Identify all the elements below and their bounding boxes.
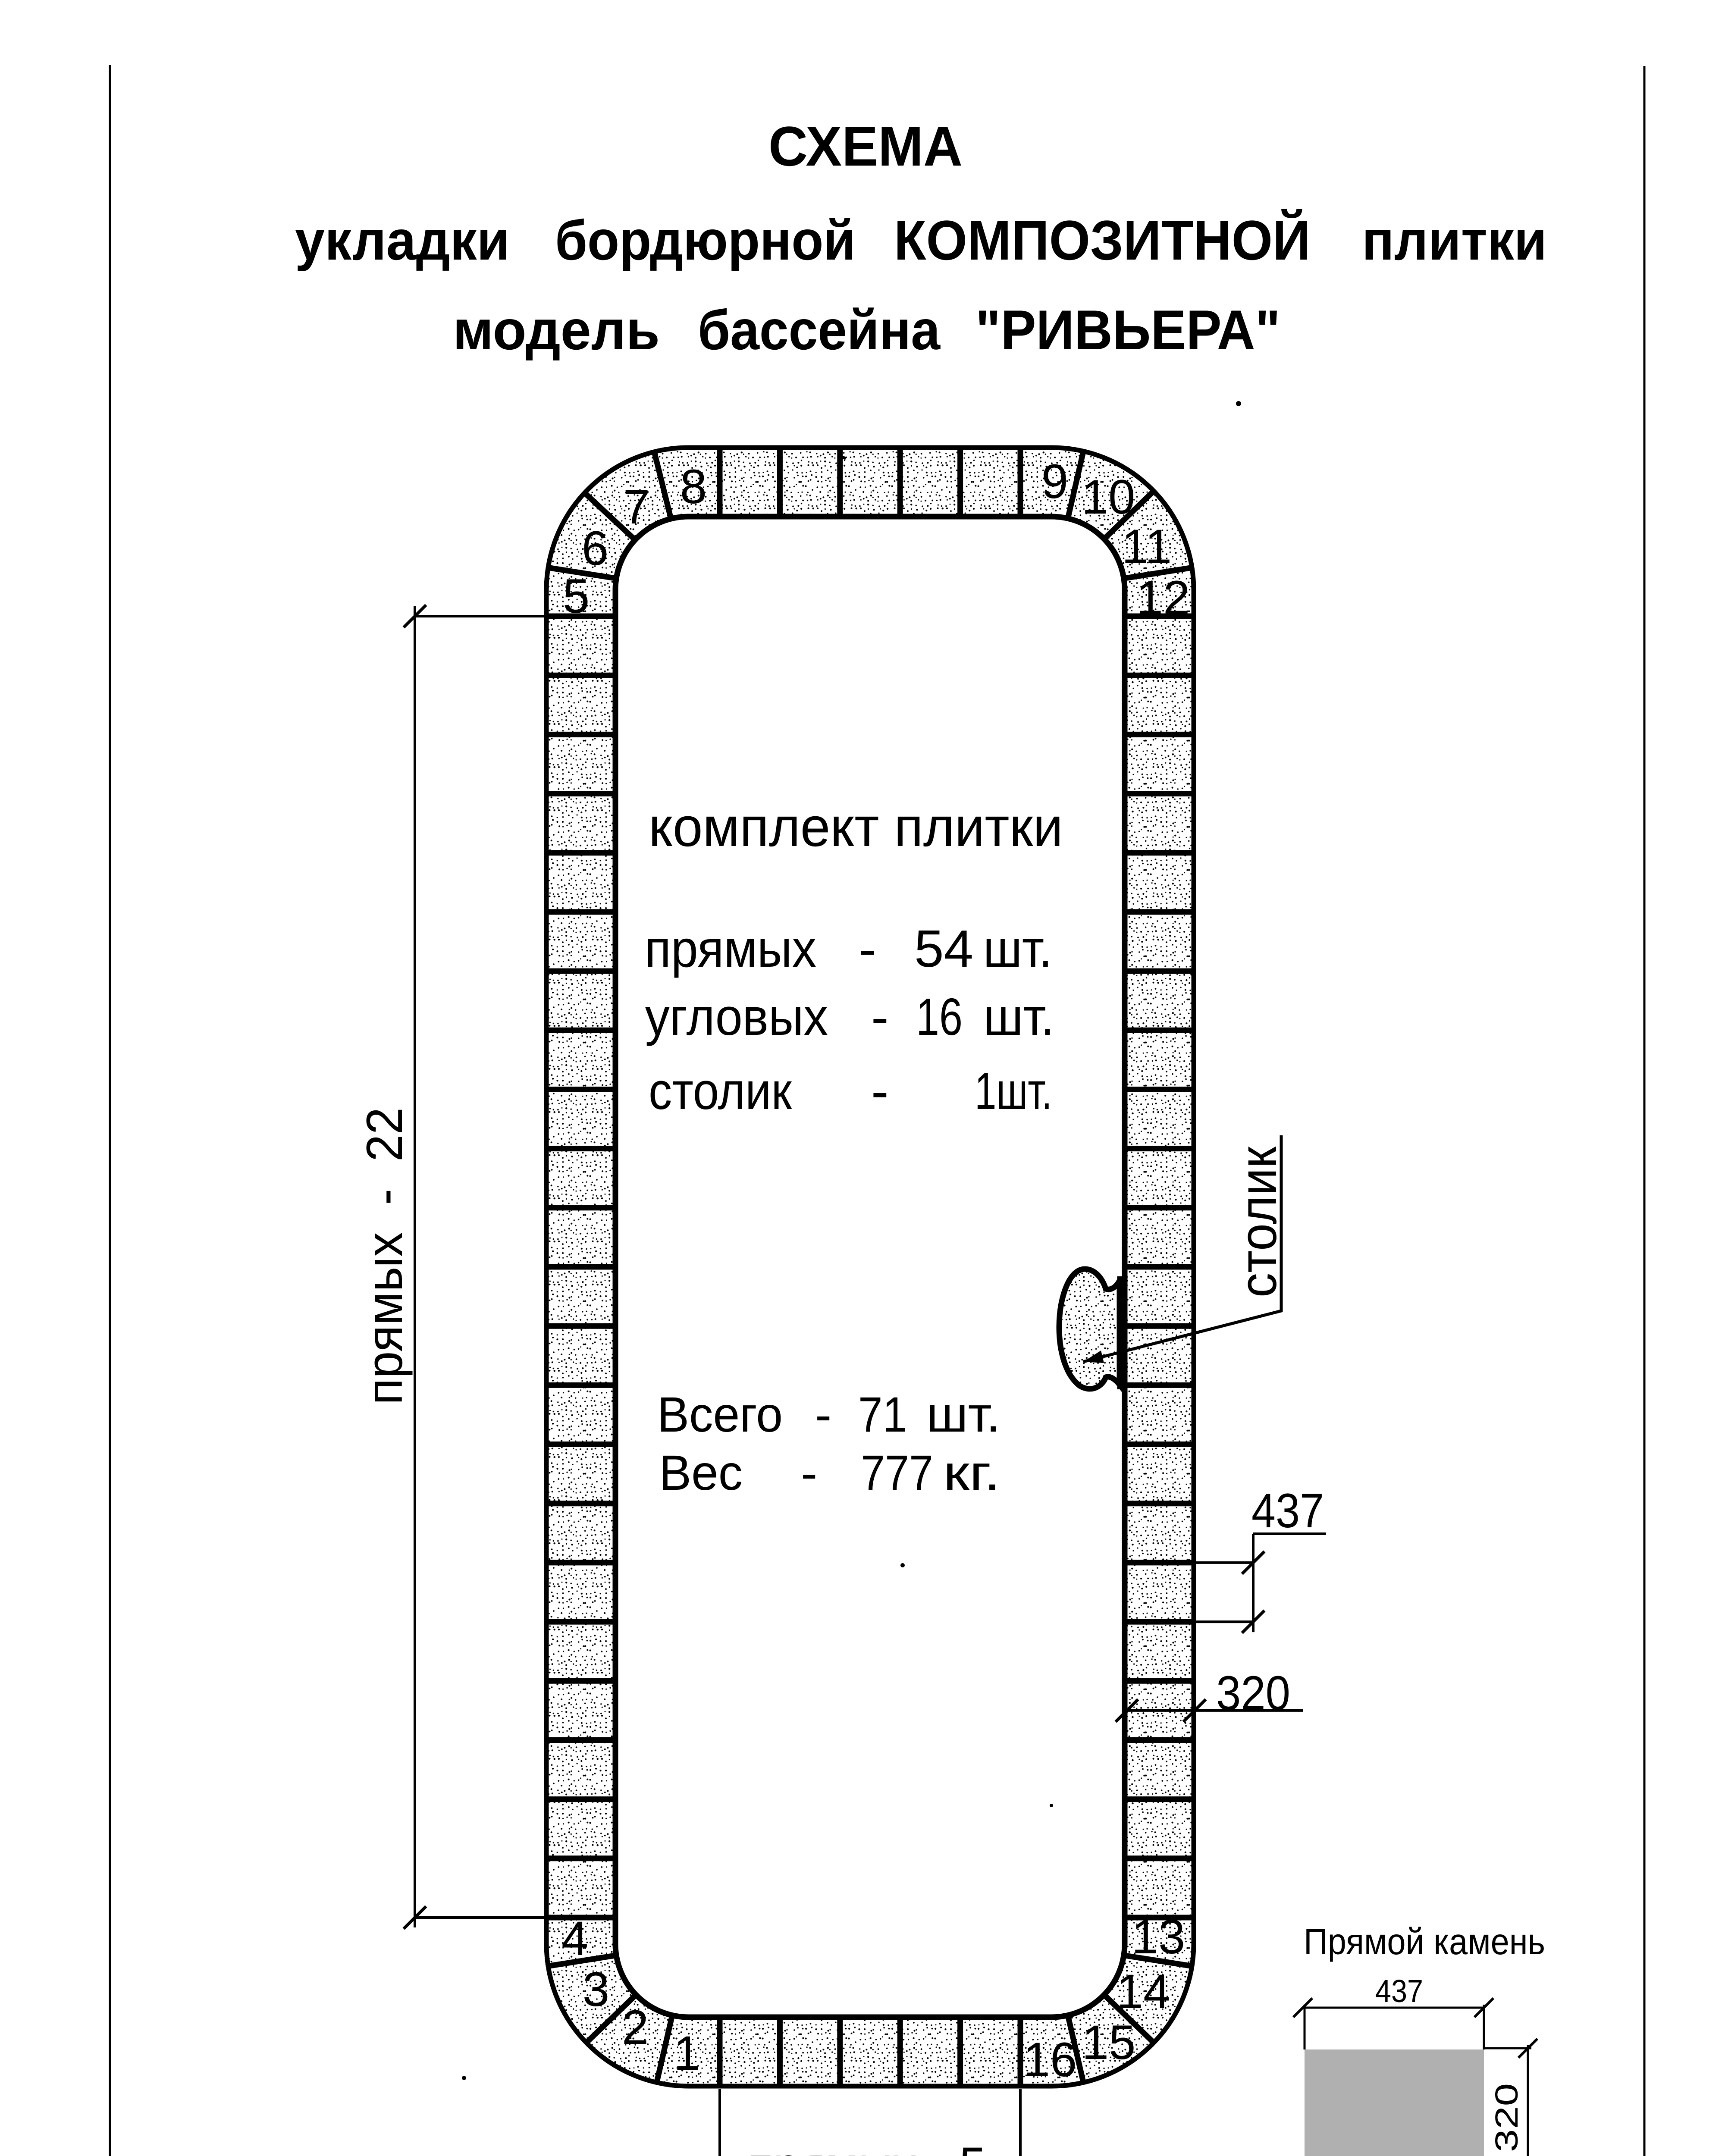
svg-text:5: 5 [563,569,590,623]
svg-text:10: 10 [1082,470,1135,524]
svg-text:-: - [859,919,876,978]
svg-text:54: 54 [914,919,973,978]
svg-text:-: - [815,1387,831,1442]
svg-text:прямых - 22: прямых - 22 [356,1107,413,1405]
svg-text:плитки: плитки [1362,209,1547,272]
svg-text:-: - [871,987,889,1046]
svg-text:13: 13 [1132,1910,1186,1964]
svg-text:комплект плитки: комплект плитки [649,796,1063,858]
svg-text:12: 12 [1136,571,1190,625]
svg-text:-: - [801,1445,817,1501]
svg-text:9: 9 [1041,454,1068,508]
svg-text:7: 7 [623,480,650,534]
svg-text:777: 777 [861,1445,933,1501]
svg-text:3: 3 [583,1962,609,2016]
svg-text:-: - [871,1062,889,1120]
svg-text:437: 437 [1375,1973,1423,2009]
svg-text:1: 1 [674,2026,700,2080]
svg-text:угловых: угловых [645,987,828,1046]
svg-text:шт.: шт. [983,987,1054,1046]
svg-text:320: 320 [1216,1666,1290,1720]
svg-text:кг.: кг. [943,1445,1000,1501]
svg-text:4: 4 [561,1912,588,1965]
svg-text:6: 6 [582,521,608,575]
svg-text:шт.: шт. [926,1387,1000,1442]
svg-text:столик: столик [649,1062,792,1120]
svg-text:Вес: Вес [659,1445,743,1501]
svg-text:бордюрной: бордюрной [555,209,856,272]
svg-text:14: 14 [1117,1965,1170,2018]
svg-text:16: 16 [916,987,963,1046]
svg-text:71: 71 [858,1387,907,1442]
svg-text:"РИВЬЕРА": "РИВЬЕРА" [975,298,1280,361]
svg-text:437: 437 [1251,1484,1324,1538]
svg-text:Прямой камень: Прямой камень [1304,1921,1545,1962]
svg-text:прямых - 5: прямых - 5 [747,2137,986,2156]
svg-text:8: 8 [680,460,707,514]
svg-text:320: 320 [1489,2083,1524,2152]
svg-text:16: 16 [1023,2033,1077,2087]
svg-text:СХЕМА: СХЕМА [768,115,963,178]
svg-text:бассейна: бассейна [698,298,941,361]
svg-text:укладки: укладки [295,209,510,272]
svg-text:15: 15 [1082,2015,1136,2069]
svg-text:модель: модель [453,298,660,361]
svg-text:прямых: прямых [645,919,816,978]
svg-text:11: 11 [1122,520,1172,573]
svg-text:столик: столик [1229,1146,1287,1297]
svg-text:2: 2 [622,2000,649,2054]
svg-text:Всего: Всего [657,1387,783,1442]
svg-text:шт.: шт. [983,919,1052,978]
svg-text:КОМПОЗИТНОЙ: КОМПОЗИТНОЙ [894,209,1311,272]
svg-text:1шт.: 1шт. [975,1062,1052,1120]
